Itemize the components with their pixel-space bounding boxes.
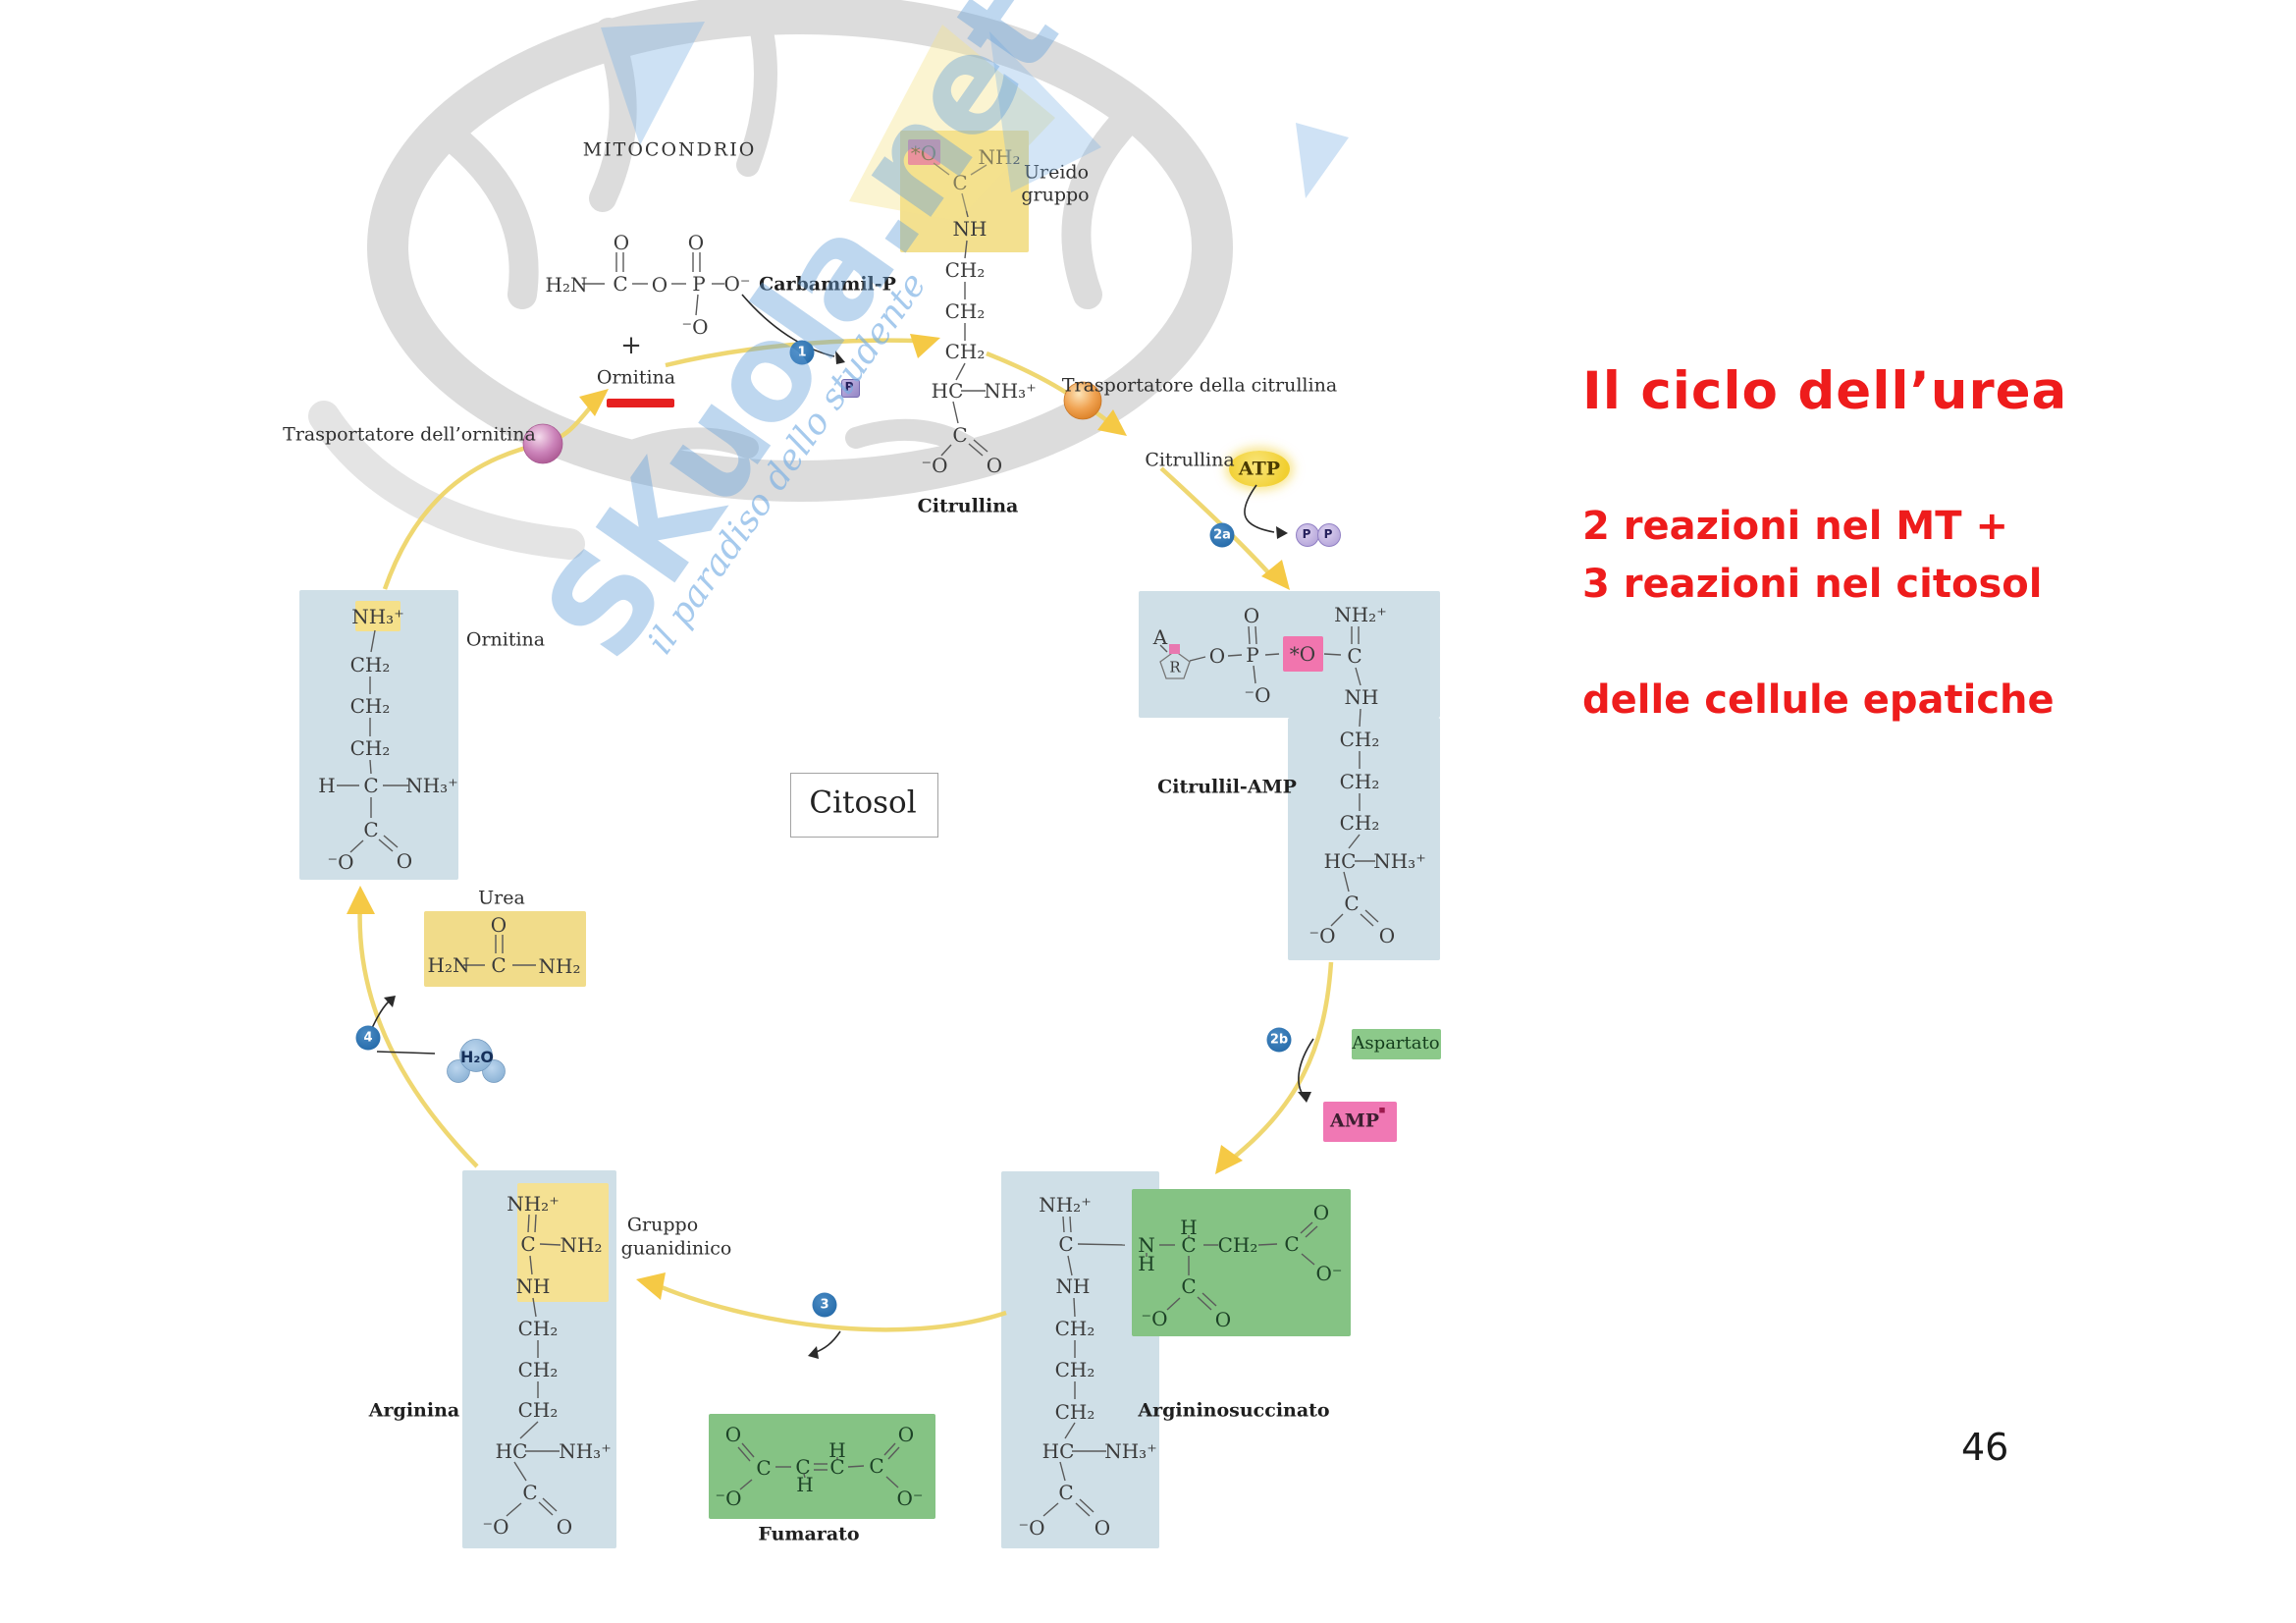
subtitle-line-2: 3 reazioni nel citosol	[1582, 562, 2042, 607]
slide-canvas: MITOCONDRIOCitosolOOH₂NCOPO⁻⁻O+Carbammil…	[0, 0, 2296, 1623]
page-number: 46	[1961, 1426, 2008, 1469]
slide-title: Il ciclo dell’urea	[1582, 361, 2067, 421]
subtitle-line-3: delle cellule epatiche	[1582, 677, 2055, 723]
subtitle-line-1: 2 reazioni nel MT +	[1582, 504, 2008, 549]
